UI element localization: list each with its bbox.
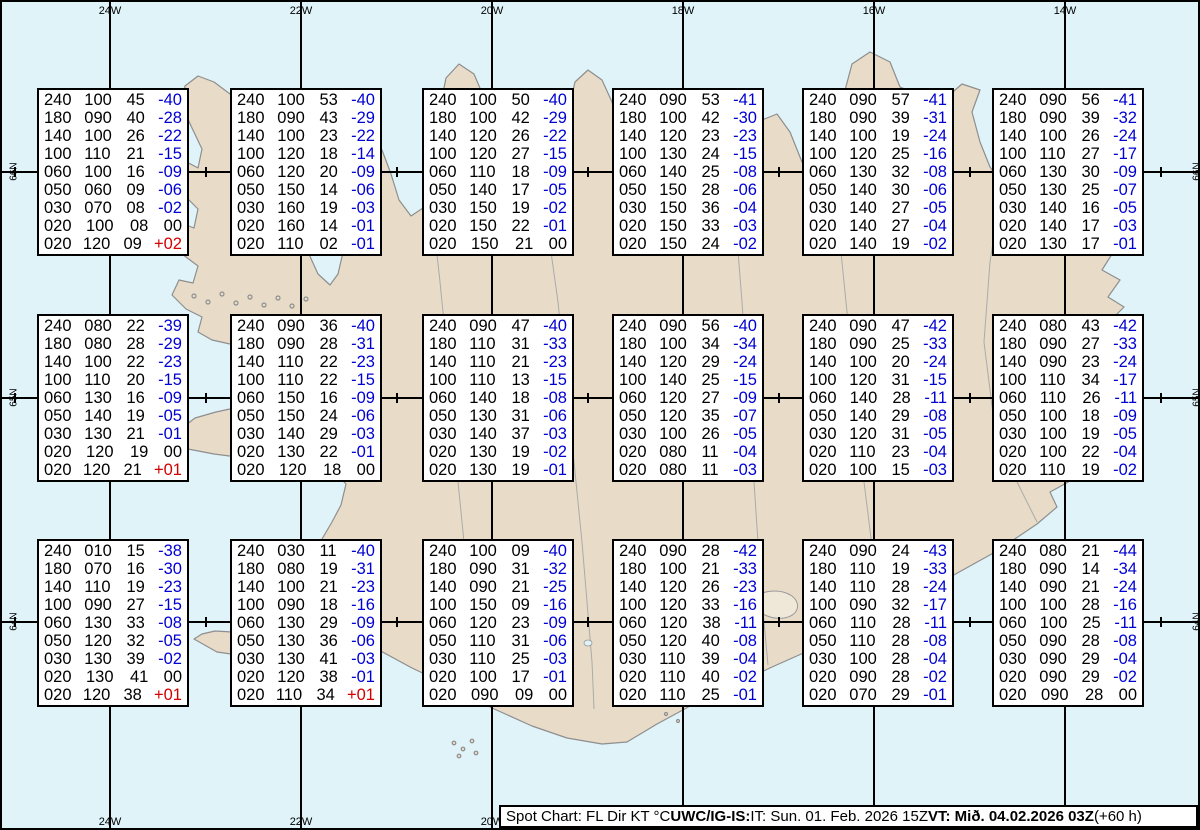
fl-value: 020 [429,217,469,235]
temp-value: -01 [351,235,375,253]
dir-value: 090 [849,91,891,109]
temp-value: -15 [543,145,567,163]
dir-value: 090 [84,596,126,614]
temp-value: -40 [351,542,375,560]
kt-value: 18 [319,145,351,163]
fl-value: 020 [44,217,86,235]
kt-value: 40 [701,632,733,650]
temp-value: -40 [543,317,567,335]
kt-value: 22 [511,217,543,235]
dir-value: 110 [276,686,317,704]
kt-value: 27 [126,596,158,614]
spot-data-row: 14011019-23 [44,578,182,596]
spot-data-row: 24009024-43 [809,542,947,560]
temp-value: -33 [923,560,947,578]
fl-value: 140 [429,578,469,596]
temp-value: -02 [1113,461,1137,479]
dir-value: 090 [277,596,319,614]
lon-label: 22W [284,816,318,828]
dir-value: 140 [277,425,319,443]
kt-value: 57 [891,91,923,109]
fl-value: 100 [809,145,849,163]
kt-value: 21 [1081,542,1113,560]
dir-value: 110 [469,650,511,668]
fl-value: 240 [237,91,277,109]
fl-value: 180 [429,335,469,353]
spot-data-row: 24008043-42 [999,317,1137,335]
kt-value: 40 [126,109,158,127]
fl-value: 140 [999,578,1039,596]
dir-value: 120 [86,443,130,461]
temp-value: -15 [158,371,182,389]
kt-value: 32 [891,596,923,614]
spot-data-row: 14010023-22 [237,127,375,145]
kt-value: 28 [1085,686,1118,704]
fl-value: 060 [429,163,469,181]
spot-data-row: 02011025-01 [619,686,757,704]
spot-data-row: 14010020-24 [809,353,947,371]
fl-value: 050 [44,181,84,199]
spot-data-row: 24009057-41 [809,91,947,109]
fl-value: 020 [809,686,849,704]
spot-data-row: 02009029-02 [999,668,1137,686]
fl-value: 240 [809,317,849,335]
spot-data-row: 03013041-03 [237,650,375,668]
dir-value: 160 [277,217,319,235]
kt-value: 21 [515,235,548,253]
temp-value: -06 [923,181,947,199]
kt-value: 19 [511,443,543,461]
spot-data-box: 24001015-3818007016-3014011019-231000902… [37,539,189,707]
temp-value: 00 [356,461,375,479]
temp-value: -15 [351,371,375,389]
fl-value: 060 [619,163,659,181]
temp-value: -11 [1114,389,1137,407]
lon-label: 24W [93,5,127,17]
spot-data-row: 24010045-40 [44,91,182,109]
dir-value: 110 [659,668,701,686]
fl-value: 180 [619,109,659,127]
dir-value: 110 [469,335,511,353]
kt-value: 22 [1081,443,1113,461]
kt-value: 18 [319,596,351,614]
fl-value: 020 [619,461,659,479]
fl-value: 100 [999,371,1039,389]
temp-value: -11 [924,389,947,407]
fl-value: 100 [619,145,659,163]
kt-value: 25 [701,163,733,181]
kt-value: 18 [323,461,356,479]
fl-value: 020 [999,217,1039,235]
fl-value: 020 [429,686,471,704]
dir-value: 100 [86,217,130,235]
fl-value: 060 [429,389,469,407]
spot-data-row: 0201502100 [429,235,567,253]
fl-value: 030 [999,650,1039,668]
kt-value: 39 [126,650,158,668]
lon-label: 16W [857,5,891,17]
spot-data-row: 05013025-07 [999,181,1137,199]
temp-value: -41 [1113,91,1137,109]
fl-value: 180 [429,560,469,578]
spot-data-row: 02015024-02 [619,235,757,253]
dir-value: 150 [659,235,701,253]
footer-text-segment: IT: Sun. 01. Feb. 2026 15Z [750,808,928,825]
dir-value: 110 [469,163,511,181]
dir-value: 090 [1039,668,1081,686]
spot-data-row: 14012023-23 [619,127,757,145]
kt-value: 02 [319,235,351,253]
spot-data-box: 24003011-4018008019-3114010021-231000901… [230,539,382,707]
temp-value: -09 [351,389,375,407]
temp-value: -04 [733,199,757,217]
temp-value: -25 [543,578,567,596]
spot-data-row: 02013017-01 [999,235,1137,253]
dir-value: 110 [849,578,891,596]
spot-data-row: 10011020-15 [44,371,182,389]
dir-value: 120 [83,461,124,479]
fl-value: 030 [619,425,659,443]
fl-value: 100 [429,371,469,389]
dir-value: 110 [659,686,701,704]
fl-value: 020 [809,668,849,686]
temp-value: -42 [923,317,947,335]
kt-value: 28 [891,632,923,650]
temp-value: -01 [543,668,567,686]
fl-value: 140 [44,578,84,596]
spot-data-row: 05012032-05 [44,632,182,650]
temp-value: -23 [351,578,375,596]
spot-data-row: 0201000800 [44,217,182,235]
temp-value: -03 [351,425,375,443]
dir-value: 130 [84,614,126,632]
kt-value: 24 [701,145,733,163]
spot-data-row: 02012021+01 [44,461,182,479]
temp-value: -03 [733,217,757,235]
kt-value: 08 [130,217,163,235]
dir-value: 100 [849,127,891,145]
kt-value: 35 [701,407,733,425]
spot-data-row: 10015009-16 [429,596,567,614]
dir-value: 140 [469,181,511,199]
kt-value: 09 [515,686,548,704]
temp-value: -24 [1113,127,1137,145]
dir-value: 100 [849,461,891,479]
dir-value: 120 [659,389,701,407]
dir-value: 110 [469,353,511,371]
spot-data-row: 24010053-40 [237,91,375,109]
spot-data-row: 10011013-15 [429,371,567,389]
spot-data-row: 03013039-02 [44,650,182,668]
spot-data-row: 06014018-08 [429,389,567,407]
kt-value: 08 [126,199,158,217]
temp-value: -01 [1113,235,1137,253]
fl-value: 060 [999,163,1039,181]
dir-value: 120 [277,668,319,686]
fl-value: 020 [44,235,83,253]
spot-data-row: 06013033-08 [44,614,182,632]
dir-value: 100 [1039,443,1081,461]
spot-data-box: 24009056-4118009039-3214010026-241001102… [992,88,1144,256]
fl-value: 060 [429,614,469,632]
temp-value: -42 [733,542,757,560]
kt-value: 47 [511,317,543,335]
fl-value: 030 [619,650,659,668]
kt-value: 19 [1081,425,1113,443]
spot-data-row: 02014019-02 [809,235,947,253]
fl-value: 180 [44,109,84,127]
fl-value: 020 [429,443,469,461]
spot-data-row: 10012033-16 [619,596,757,614]
dir-value: 110 [1040,389,1083,407]
temp-value: -32 [543,560,567,578]
dir-value: 140 [659,371,701,389]
temp-value: -09 [543,614,567,632]
kt-value: 28 [701,542,733,560]
dir-value: 100 [659,425,701,443]
temp-value: -16 [1113,596,1137,614]
dir-value: 120 [277,163,319,181]
temp-value: -16 [733,596,757,614]
fl-value: 020 [999,686,1041,704]
spot-data-row: 03014016-05 [999,199,1137,217]
dir-value: 080 [659,461,701,479]
spot-data-row: 03016019-03 [237,199,375,217]
lon-label: 24W [93,816,127,828]
spot-data-row: 05011028-08 [809,632,947,650]
kt-value: 21 [319,578,351,596]
dir-value: 110 [469,632,511,650]
spot-data-row: 06010025-11 [999,614,1137,632]
spot-data-row: 10012025-16 [809,145,947,163]
spot-data-row: 02010022-04 [999,443,1137,461]
kt-value: 19 [319,199,351,217]
dir-value: 090 [849,596,891,614]
fl-value: 100 [44,371,84,389]
spot-data-row: 02010017-01 [429,668,567,686]
temp-value: -40 [543,91,567,109]
kt-value: 28 [891,578,923,596]
spot-data-row: 18010034-34 [619,335,757,353]
fl-value: 140 [999,353,1039,371]
fl-value: 100 [619,596,659,614]
fl-value: 100 [237,145,277,163]
fl-value: 240 [44,542,84,560]
kt-value: 21 [511,578,543,596]
fl-value: 240 [809,542,849,560]
temp-value: -33 [1113,335,1137,353]
temp-value: -24 [733,353,757,371]
kt-value: 38 [124,686,155,704]
kt-value: 25 [891,145,923,163]
spot-data-row: 05006009-06 [44,181,182,199]
fl-value: 020 [44,443,86,461]
dir-value: 100 [84,163,126,181]
spot-data-row: 05014019-05 [44,407,182,425]
fl-value: 050 [429,632,469,650]
fl-value: 240 [44,317,84,335]
fl-value: 050 [619,632,659,650]
spot-data-box: 24010045-4018009040-2814010026-221001102… [37,88,189,256]
fl-value: 100 [429,596,469,614]
fl-value: 020 [619,668,659,686]
temp-value: -31 [923,109,947,127]
dir-value: 090 [471,686,515,704]
fl-value: 030 [237,650,277,668]
graticule-tick [1160,617,1162,627]
kt-value: 23 [701,127,733,145]
temp-value: -40 [733,317,757,335]
temp-value: -03 [923,461,947,479]
dir-value: 100 [84,127,126,145]
spot-data-row: 24009047-40 [429,317,567,335]
temp-value: -06 [733,181,757,199]
dir-value: 090 [1041,686,1085,704]
fl-value: 140 [237,353,277,371]
temp-value: -02 [158,199,182,217]
spot-data-row: 18010021-33 [619,560,757,578]
kt-value: 25 [701,686,733,704]
spot-data-row: 06013029-09 [237,614,375,632]
fl-value: 180 [809,109,849,127]
dir-value: 100 [469,542,511,560]
dir-value: 080 [1039,542,1081,560]
kt-value: 45 [126,91,158,109]
dir-value: 130 [84,389,126,407]
kt-value: 31 [511,632,543,650]
fl-value: 030 [999,425,1039,443]
temp-value: -30 [158,560,182,578]
temp-value: -08 [543,389,567,407]
temp-value: -09 [351,163,375,181]
spot-data-row: 02011002-01 [237,235,375,253]
kt-value: 32 [126,632,158,650]
dir-value: 090 [469,578,511,596]
temp-value: -11 [1114,614,1137,632]
kt-value: 25 [511,650,543,668]
temp-value: -22 [158,127,182,145]
kt-value: 16 [319,389,351,407]
spot-data-row: 0200900900 [429,686,567,704]
kt-value: 31 [511,335,543,353]
kt-value: 42 [511,109,543,127]
spot-data-row: 18008019-31 [237,560,375,578]
dir-value: 130 [1039,163,1081,181]
dir-value: 110 [849,560,891,578]
fl-value: 140 [809,353,849,371]
kt-value: 19 [891,127,923,145]
kt-value: 27 [511,145,543,163]
fl-value: 140 [619,127,659,145]
temp-value: -02 [543,199,567,217]
kt-value: 19 [1081,461,1113,479]
kt-value: 39 [701,650,733,668]
fl-value: 030 [44,650,84,668]
kt-value: 30 [1081,163,1113,181]
kt-value: 29 [891,407,923,425]
spot-data-row: 24009056-40 [619,317,757,335]
fl-value: 060 [999,389,1040,407]
dir-value: 090 [1039,578,1081,596]
dir-value: 120 [849,145,891,163]
fl-value: 020 [237,217,277,235]
dir-value: 150 [659,217,701,235]
fl-value: 020 [809,461,849,479]
spot-data-row: 03014027-05 [809,199,947,217]
kt-value: 27 [891,199,923,217]
fl-value: 020 [237,235,277,253]
temp-value: -16 [543,596,567,614]
kt-value: 53 [701,91,733,109]
fl-value: 020 [619,235,659,253]
temp-value: 00 [1118,686,1137,704]
temp-value: -41 [733,91,757,109]
dir-value: 120 [469,145,511,163]
spot-data-row: 10012031-15 [809,371,947,389]
kt-value: 27 [1081,145,1113,163]
dir-value: 150 [659,181,701,199]
temp-value: -08 [923,407,947,425]
spot-data-row: 03014029-03 [237,425,375,443]
lat-label: 66N [9,159,20,185]
temp-value: -17 [923,596,947,614]
temp-value: +01 [154,686,182,704]
dir-value: 090 [1039,632,1081,650]
temp-value: -08 [158,614,182,632]
spot-data-row: 03013021-01 [44,425,182,443]
dir-value: 090 [1039,353,1081,371]
spot-data-row: 05009028-08 [999,632,1137,650]
spot-data-row: 02014017-03 [999,217,1137,235]
temp-value: -23 [158,578,182,596]
temp-value: -31 [351,335,375,353]
temp-value: -05 [733,425,757,443]
dir-value: 150 [469,217,511,235]
spot-data-box: 24009057-4118009039-3114010019-241001202… [802,88,954,256]
dir-value: 080 [84,317,126,335]
temp-value: -08 [733,163,757,181]
fl-value: 030 [809,199,849,217]
spot-data-row: 18010042-30 [619,109,757,127]
footer-text-segment: UWC/IG-IS: [670,808,750,825]
temp-value: -04 [733,650,757,668]
kt-value: 56 [1081,91,1113,109]
spot-data-row: 18009028-31 [237,335,375,353]
kt-value: 38 [319,668,351,686]
dir-value: 110 [1039,371,1081,389]
kt-value: 20 [891,353,923,371]
fl-value: 240 [999,542,1039,560]
temp-value: -03 [351,650,375,668]
temp-value: -15 [733,145,757,163]
spot-data-row: 0200902800 [999,686,1137,704]
dir-value: 100 [659,109,701,127]
kt-value: 29 [319,614,351,632]
kt-value: 26 [126,127,158,145]
spot-data-row: 03010028-04 [809,650,947,668]
temp-value: -09 [158,389,182,407]
temp-value: -09 [158,163,182,181]
kt-value: 36 [319,317,351,335]
dir-value: 100 [659,560,701,578]
fl-value: 140 [999,127,1039,145]
fl-value: 020 [429,461,469,479]
spot-data-row: 06014025-08 [619,163,757,181]
kt-value: 19 [126,578,158,596]
temp-value: -14 [351,145,375,163]
spot-data-row: 14010021-23 [237,578,375,596]
graticule-tick [969,393,971,403]
